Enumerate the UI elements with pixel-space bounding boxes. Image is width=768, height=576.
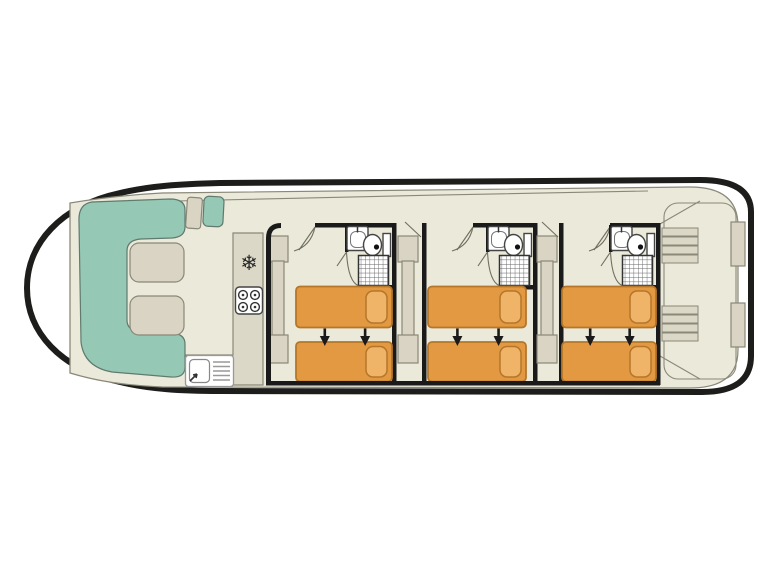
fridge-icon: ❄ bbox=[240, 251, 258, 275]
toilet-drain bbox=[515, 244, 520, 249]
toilet-bowl bbox=[364, 235, 382, 256]
toilet-drain bbox=[374, 244, 379, 249]
pillow bbox=[630, 347, 651, 378]
pillow bbox=[366, 291, 387, 323]
pillow bbox=[366, 347, 387, 378]
toilet-bowl bbox=[628, 235, 646, 256]
bed bbox=[428, 342, 526, 382]
boat-deck-plan: ❄ bbox=[0, 0, 768, 576]
bed bbox=[428, 287, 526, 328]
bed bbox=[562, 342, 656, 382]
pillow bbox=[630, 291, 651, 323]
toilet-icon bbox=[364, 234, 391, 257]
shower-icon bbox=[500, 256, 530, 286]
deck-plan-canvas: ❄ bbox=[0, 0, 768, 576]
wardrobe-body bbox=[541, 261, 553, 336]
pillow bbox=[500, 347, 521, 378]
toilet-drain bbox=[638, 244, 643, 249]
helm-step bbox=[185, 197, 202, 229]
pillow bbox=[500, 291, 521, 323]
bed bbox=[562, 287, 656, 328]
bed bbox=[296, 287, 392, 328]
stove-icon bbox=[236, 287, 263, 314]
toilet-icon bbox=[505, 234, 532, 257]
cabin-bottom-wall bbox=[266, 381, 660, 386]
wardrobe-cap-bottom bbox=[537, 335, 557, 363]
galley-sink-icon bbox=[186, 356, 234, 387]
cabin-left-wall bbox=[422, 223, 427, 385]
wardrobe-body bbox=[272, 261, 284, 336]
staircase-bottom bbox=[662, 306, 698, 341]
toilet-cistern bbox=[647, 234, 655, 257]
stern-locker-bottom bbox=[731, 303, 745, 347]
wardrobe-cap-bottom bbox=[398, 335, 418, 363]
saloon-table-top bbox=[130, 243, 184, 282]
wardrobe-cap-top bbox=[537, 236, 557, 262]
helm-seat bbox=[203, 196, 225, 227]
shower-icon bbox=[359, 256, 389, 286]
toilet-cistern bbox=[524, 234, 532, 257]
toilet-bowl bbox=[505, 235, 523, 256]
staircase-top bbox=[662, 228, 698, 263]
bed bbox=[296, 342, 392, 382]
toilet-icon bbox=[628, 234, 655, 257]
wardrobe-body bbox=[402, 261, 414, 336]
wardrobe-cap-top bbox=[398, 236, 418, 262]
saloon-table-bottom bbox=[130, 296, 184, 335]
toilet-cistern bbox=[383, 234, 391, 257]
shower-icon bbox=[623, 256, 653, 286]
stern-locker-top bbox=[731, 222, 745, 266]
